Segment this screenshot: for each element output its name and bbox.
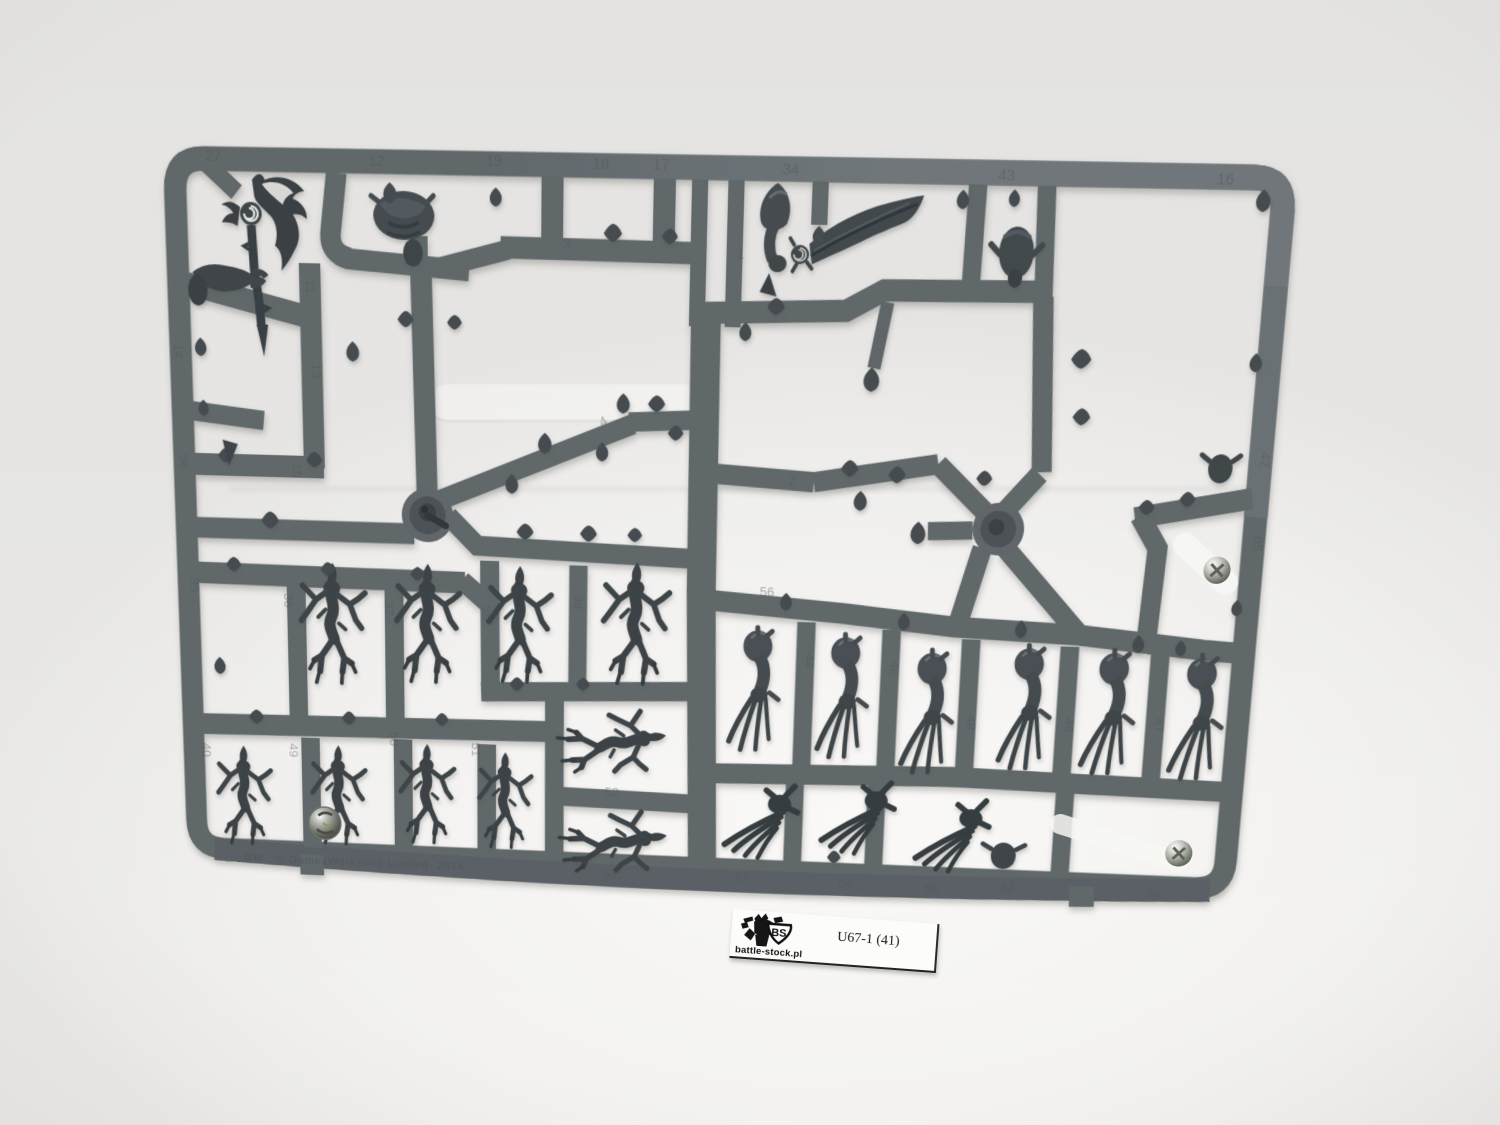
svg-text:44: 44 [802,653,817,668]
svg-text:2: 2 [788,472,796,488]
svg-text:46: 46 [1061,718,1077,733]
svg-text:30: 30 [1145,886,1161,901]
svg-text:37: 37 [382,601,397,616]
svg-text:43: 43 [997,167,1015,185]
svg-text:12: 12 [368,152,385,170]
svg-text:47: 47 [1151,718,1167,733]
svg-text:BS: BS [771,927,787,940]
svg-text:50: 50 [387,732,402,747]
svg-text:45: 45 [887,661,903,676]
svg-text:18: 18 [592,155,609,173]
svg-text:3: 3 [563,235,571,252]
svg-text:14: 14 [171,343,186,359]
svg-text:58: 58 [177,454,192,470]
svg-text:57: 57 [735,871,750,886]
svg-text:11: 11 [303,279,318,294]
svg-text:13: 13 [309,363,324,379]
svg-text:19: 19 [485,152,502,170]
svg-text:53: 53 [603,865,617,880]
svg-text:51: 51 [469,742,483,757]
svg-text:17: 17 [653,156,670,174]
svg-text:55: 55 [923,881,938,896]
svg-text:15: 15 [290,463,305,479]
svg-text:56: 56 [759,584,774,600]
svg-text:65: 65 [1250,536,1267,552]
svg-text:54: 54 [838,876,853,891]
svg-text:42: 42 [999,880,1014,895]
svg-text:52: 52 [605,784,619,799]
svg-text:16: 16 [1216,171,1235,189]
svg-text:42: 42 [1257,452,1274,468]
svg-text:1: 1 [737,245,745,262]
svg-text:49: 49 [287,743,302,758]
svg-text:27: 27 [205,147,222,165]
svg-text:35: 35 [188,577,203,592]
svg-text:36: 36 [281,593,296,608]
svg-text:40: 40 [200,743,215,758]
svg-text:39: 39 [571,594,586,609]
svg-text:48: 48 [963,715,979,730]
svg-text:34: 34 [782,161,800,179]
